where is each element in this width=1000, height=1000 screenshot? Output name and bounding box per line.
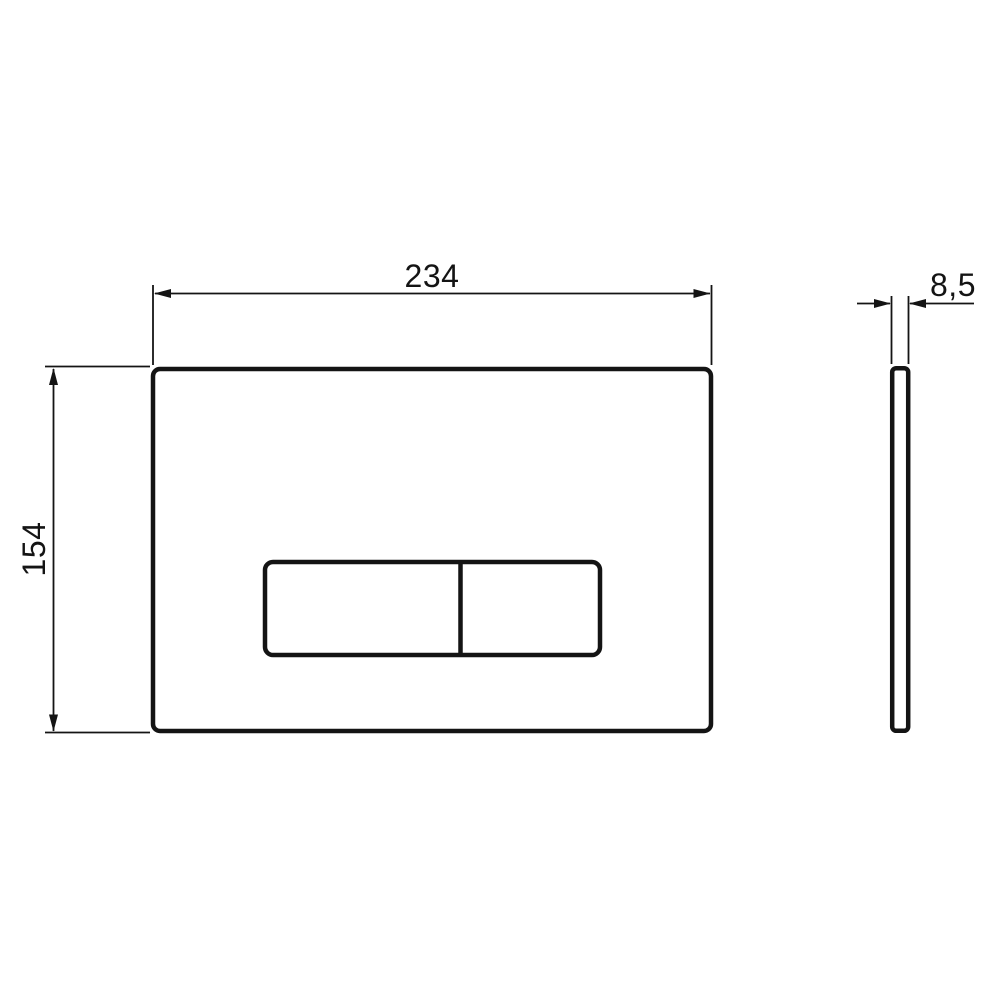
width-dimension-label: 234 bbox=[405, 258, 460, 294]
arrow-right-icon bbox=[874, 299, 891, 308]
flush-plate-drawing: 234 154 8,5 bbox=[0, 0, 1000, 1000]
flush-buttons-outline bbox=[265, 562, 600, 655]
height-dimension-label: 154 bbox=[16, 522, 52, 577]
arrow-down-icon bbox=[49, 715, 58, 732]
plate-side-profile-outline bbox=[892, 368, 908, 731]
technical-drawing-canvas: 234 154 8,5 bbox=[0, 0, 1000, 1000]
plate-outline bbox=[153, 369, 711, 731]
arrow-right-icon bbox=[694, 289, 711, 298]
thickness-dimension: 8,5 bbox=[857, 267, 976, 364]
width-dimension: 234 bbox=[153, 258, 712, 365]
arrow-left-icon bbox=[154, 289, 171, 298]
arrow-left-icon bbox=[909, 299, 926, 308]
arrow-up-icon bbox=[49, 368, 58, 385]
plate-front-view bbox=[153, 369, 711, 731]
plate-side-view bbox=[892, 368, 908, 731]
height-dimension: 154 bbox=[16, 367, 150, 733]
thickness-dimension-label: 8,5 bbox=[930, 267, 976, 303]
